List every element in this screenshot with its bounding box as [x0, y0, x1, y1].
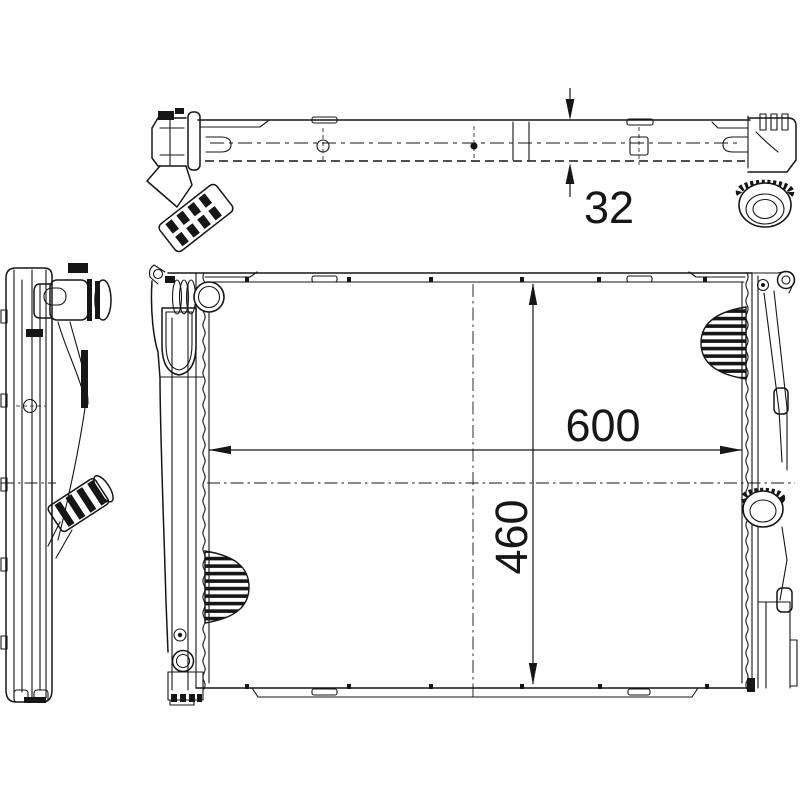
topview-step-right — [712, 122, 748, 128]
topview-square-port — [630, 137, 648, 155]
topview-left-pin — [206, 137, 231, 152]
bracket-foot — [758, 602, 797, 688]
drawing-canvas: 32 — [0, 0, 800, 800]
arrow-down-icon — [566, 99, 575, 120]
coupling-shell — [157, 182, 235, 253]
front-left-tank — [150, 265, 225, 705]
sideview-dark-tab — [26, 329, 43, 337]
arrow-up-icon — [566, 163, 575, 184]
front-right-tank — [743, 272, 797, 693]
connector-body — [50, 280, 88, 320]
connector-window — [44, 288, 66, 305]
dim-width-label: 600 — [565, 400, 640, 451]
hose-coupling — [157, 182, 235, 253]
fin-patch-left — [205, 551, 249, 623]
core-left-wavy-edge — [203, 273, 205, 689]
mount-hole — [154, 270, 163, 279]
tank-wall-lines — [752, 273, 758, 688]
top-view: 32 — [147, 88, 796, 254]
dim-width: 600 — [209, 400, 742, 454]
arrow-right-icon — [720, 446, 742, 454]
radiator-technical-drawing: 32 — [0, 0, 800, 800]
connector-body — [748, 118, 796, 172]
drain-plug — [173, 651, 194, 672]
core-right-wavy-edge — [746, 273, 748, 689]
side-view — [1, 263, 117, 703]
elbow-pipe — [147, 166, 192, 207]
dim-depth-label: 32 — [584, 182, 634, 233]
topview-right-pin — [723, 137, 748, 152]
connector-tab-dark — [175, 108, 184, 114]
front-view: 600 460 — [150, 265, 798, 705]
sideview-dark-pipe — [81, 350, 88, 408]
connector-detail — [160, 118, 184, 166]
topview-step-left — [200, 121, 268, 127]
sideview-foot-dark — [24, 697, 46, 703]
arrow-left-icon — [209, 446, 231, 454]
fin-patch-right — [701, 307, 746, 379]
tank-pocket — [162, 308, 196, 375]
arrow-up-icon — [529, 283, 537, 305]
dim-height: 460 — [486, 283, 537, 685]
bolt-hole-large — [778, 272, 795, 289]
connector-body — [152, 118, 186, 166]
connector-detail — [756, 132, 778, 152]
sideview-mid-coupling — [47, 473, 117, 533]
dim-height-label: 460 — [486, 499, 537, 574]
topview-left-connector — [147, 108, 235, 254]
connector-cap-dark — [158, 111, 174, 120]
bracket-arm — [764, 291, 787, 470]
arrow-down-icon — [529, 663, 537, 685]
